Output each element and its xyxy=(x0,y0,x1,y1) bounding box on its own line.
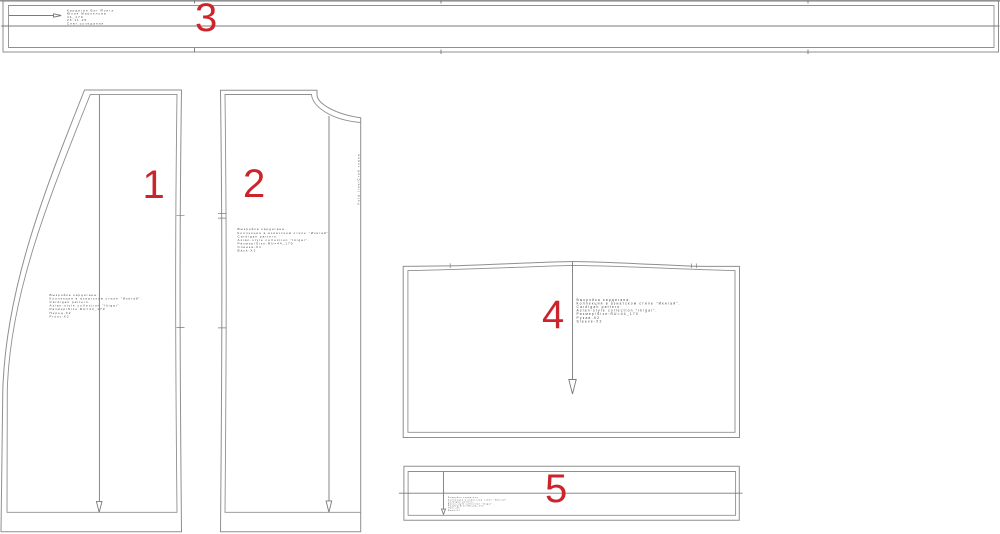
svg-text:Sleeve-Х2: Sleeve-Х2 xyxy=(577,319,603,323)
svg-text:Fold line/Сгиб ткани: Fold line/Сгиб ткани xyxy=(356,153,360,204)
svg-text:Back-Х1: Back-Х1 xyxy=(238,249,257,253)
svg-text:Band-Х1: Band-Х1 xyxy=(448,510,460,512)
svg-text:1: 1 xyxy=(143,163,165,207)
svg-text:Front-Х2: Front-Х2 xyxy=(50,314,70,318)
svg-text:4: 4 xyxy=(542,293,564,337)
svg-text:5: 5 xyxy=(545,467,567,511)
svg-text:3: 3 xyxy=(195,0,217,40)
svg-text:2: 2 xyxy=(243,162,265,206)
svg-text:Севт.созидания: Севт.созидания xyxy=(67,22,104,26)
